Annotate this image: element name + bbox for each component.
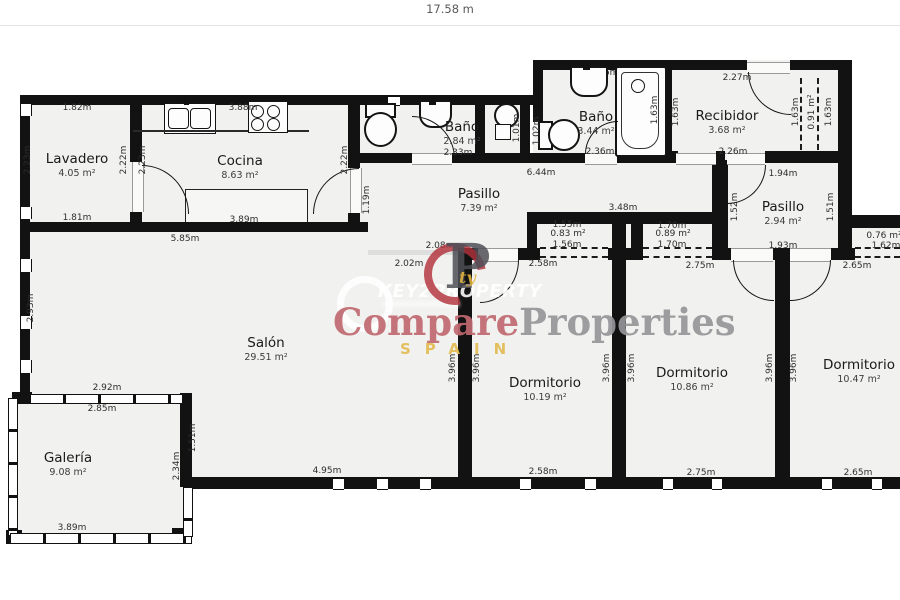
toilet-bowl-icon xyxy=(548,119,580,151)
dim-d396: 3.96m xyxy=(789,354,799,383)
room-name: Galería xyxy=(44,450,92,466)
closet-dashed-line xyxy=(643,256,712,258)
dim-pasillo1_right: 3.48m xyxy=(609,203,638,213)
wall xyxy=(527,222,537,250)
wall xyxy=(348,153,412,163)
room-label-salon: Salón29.51 m² xyxy=(244,335,287,363)
dim-closetA_bottom: 1.56m xyxy=(553,240,582,250)
dim-galeria_right_bottom: 2.34m xyxy=(172,452,182,481)
room-label-recibidor: Recibidor3.68 m² xyxy=(696,108,759,136)
dim-lavadero_bottom: 1.81m xyxy=(63,213,92,223)
window xyxy=(585,478,596,490)
window xyxy=(712,478,722,490)
room-area: 3.68 m² xyxy=(696,125,759,136)
stove-burner xyxy=(267,105,280,118)
window xyxy=(333,478,344,490)
window-band xyxy=(8,398,18,536)
room-label-cocina: Cocina8.63 m² xyxy=(217,153,263,181)
dim-lavadero_right: 2.22m xyxy=(119,146,129,175)
window xyxy=(20,104,32,116)
dim-closetB_area: 0.89 m² xyxy=(655,229,690,239)
dim-galeria_top_in: 2.85m xyxy=(88,404,117,414)
dim-lavadero_top: 1.82m xyxy=(63,103,92,113)
dim-d396: 3.96m xyxy=(448,354,458,383)
dim-tub_side: 1.63m xyxy=(650,96,660,125)
wall xyxy=(712,160,728,260)
window xyxy=(420,478,431,490)
wall xyxy=(20,222,368,232)
closet-dashed-line xyxy=(817,78,819,150)
threshold xyxy=(676,153,716,165)
dim-d396: 3.96m xyxy=(627,354,637,383)
room-area: 8.63 m² xyxy=(217,170,263,181)
floor-plan: KEY2PROPERTY P ty CompareProperties SPAI… xyxy=(0,0,900,600)
room-area: 4.05 m² xyxy=(46,168,108,179)
wall xyxy=(775,248,790,477)
room-area: 10.47 m² xyxy=(823,374,895,385)
room-name: Salón xyxy=(244,335,287,351)
dim-galeria_bottom: 3.89m xyxy=(58,523,87,533)
window-band xyxy=(10,533,192,544)
room-name: Dormitorio xyxy=(656,365,728,381)
wall xyxy=(348,213,360,232)
dim-salon_open_top: 2.08m xyxy=(426,241,455,251)
room-label-dorm1: Dormitorio10.19 m² xyxy=(509,375,581,403)
room-label-pasillo1: Pasillo7.39 m² xyxy=(458,186,500,214)
room-name: Pasillo xyxy=(762,199,804,215)
dim-pasillo1_top: 6.44m xyxy=(527,168,556,178)
dim-cocina_bottom: 5.85m xyxy=(171,234,200,244)
dim-dorm1_bottom: 2.58m xyxy=(529,467,558,477)
dim-dorm3_bottom: 2.65m xyxy=(844,468,873,478)
bathroom-sink-icon xyxy=(570,66,608,97)
dim-cocina_island: 3.89m xyxy=(230,215,259,225)
room-area: 7.39 m² xyxy=(458,203,500,214)
dim-dorm2_top: 2.75m xyxy=(686,261,715,271)
room-label-galeria: Galería9.08 m² xyxy=(44,450,92,478)
wall xyxy=(183,477,900,489)
dim-closet_rec_right: 1.63m xyxy=(824,98,834,127)
closet-dashed-line xyxy=(855,256,900,258)
window xyxy=(20,360,32,373)
window xyxy=(822,478,832,490)
kitchen-sink-bowl-left xyxy=(168,108,189,129)
dim-banyo2_bottom: 2.36m xyxy=(586,147,615,157)
dim-cocina_top: 3.88m xyxy=(229,103,258,113)
wall xyxy=(458,248,472,477)
dim-lavadero_left: 2.23m xyxy=(23,146,33,175)
dim-d396: 3.96m xyxy=(472,354,482,383)
window xyxy=(20,207,32,219)
dim-recibidor_top: 2.27m xyxy=(723,73,752,83)
dim-closetC_area: 0.76 m² xyxy=(866,231,900,241)
dim-closet_rec_left: 1.63m xyxy=(791,98,801,127)
dim-pasillo1_left: 1.19m xyxy=(362,186,372,215)
wall xyxy=(838,160,852,260)
wall xyxy=(130,212,142,222)
dim-galeria_top_out: 2.92m xyxy=(93,383,122,393)
stove-burner xyxy=(267,118,280,131)
room-area: 3.44 m² xyxy=(577,126,614,137)
room-area: 2.84 m² xyxy=(443,136,480,147)
sink-faucet-icon xyxy=(583,61,590,70)
room-area: 9.08 m² xyxy=(44,467,92,478)
room-area: 2.94 m² xyxy=(762,216,804,227)
dim-recibidor_bottom: 2.26m xyxy=(719,147,748,157)
window-band xyxy=(30,394,183,404)
closet-dashed-line xyxy=(540,256,608,258)
room-label-banyo2: Baño3.44 m² xyxy=(577,109,614,137)
dim-pasillo2_bottom: 1.93m xyxy=(769,241,798,251)
room-name: Cocina xyxy=(217,153,263,169)
window xyxy=(377,478,388,490)
room-name: Dormitorio xyxy=(509,375,581,391)
wall xyxy=(831,248,855,260)
dim-dorm2_bottom: 2.75m xyxy=(687,468,716,478)
dim-pasillo2_left: 1.52m xyxy=(730,193,740,222)
wall xyxy=(631,222,643,250)
kitchen-sink-bowl-right xyxy=(190,108,211,129)
room-label-dorm2: Dormitorio10.86 m² xyxy=(656,365,728,393)
window-band xyxy=(183,487,193,537)
dim-galeria_right_top: 1.51m xyxy=(188,424,198,453)
room-label-dorm3: Dormitorio10.47 m² xyxy=(823,357,895,385)
dim-dorm1_top: 2.58m xyxy=(529,259,558,269)
dim-cocina_right: 2.22m xyxy=(340,146,350,175)
open-passage xyxy=(368,250,470,255)
room-area: 29.51 m² xyxy=(244,352,287,363)
room-name: Dormitorio xyxy=(823,357,895,373)
dim-dorm3_top: 2.65m xyxy=(843,261,872,271)
dim-banyo1_bottom: 2.33m xyxy=(444,148,473,158)
dim-d396: 3.96m xyxy=(765,354,775,383)
bathtub-drain-icon xyxy=(631,79,645,93)
dim-cocina_left: 2.23m xyxy=(138,146,148,175)
room-name: Baño xyxy=(577,109,614,125)
window xyxy=(20,259,32,272)
window xyxy=(520,478,531,490)
room-name: Pasillo xyxy=(458,186,500,202)
dim-recibidor_left: 1.63m xyxy=(671,98,681,127)
room-name: Recibidor xyxy=(696,108,759,124)
dim-shower_w: 1.01m xyxy=(512,114,522,143)
window xyxy=(872,478,882,490)
dim-closetB_bottom: 1.70m xyxy=(658,240,687,250)
room-area: 10.19 m² xyxy=(509,392,581,403)
room-label-pasillo2: Pasillo2.94 m² xyxy=(762,199,804,227)
sink-faucet-icon xyxy=(429,96,436,105)
window xyxy=(663,478,673,490)
stove-burner xyxy=(251,118,264,131)
dim-salon_open_bottom: 2.02m xyxy=(395,259,424,269)
dim-d396: 3.96m xyxy=(602,354,612,383)
dim-salon_bottom: 4.95m xyxy=(313,466,342,476)
room-label-lavadero: Lavadero4.05 m² xyxy=(46,151,108,179)
room-name: Lavadero xyxy=(46,151,108,167)
room-name: Baño xyxy=(443,119,480,135)
scale-divider-line xyxy=(0,25,900,26)
floor-area xyxy=(10,395,192,543)
dim-closetC_w: 1.62m xyxy=(872,241,900,251)
toilet-bowl-icon xyxy=(364,112,397,147)
dim-pasillo2_right: 1.51m xyxy=(826,193,836,222)
shower-drain-icon xyxy=(495,124,511,140)
dim-closetA_area: 0.83 m² xyxy=(550,229,585,239)
wall xyxy=(852,215,900,228)
dim-scale_label: 17.58 m xyxy=(426,2,474,16)
dim-closet_rec_area: 0.91 m² xyxy=(807,94,817,129)
room-label-banyo1: Baño2.84 m² xyxy=(443,119,480,147)
wall xyxy=(712,248,731,260)
dim-salon_left: 2.93m xyxy=(26,294,36,323)
room-area: 10.86 m² xyxy=(656,382,728,393)
wall xyxy=(838,60,852,163)
kitchen-faucet-bar-icon xyxy=(179,97,194,101)
wall xyxy=(612,222,626,477)
dim-strip_w: 1.02m xyxy=(532,117,542,146)
dim-pasillo2_top: 1.94m xyxy=(769,169,798,179)
